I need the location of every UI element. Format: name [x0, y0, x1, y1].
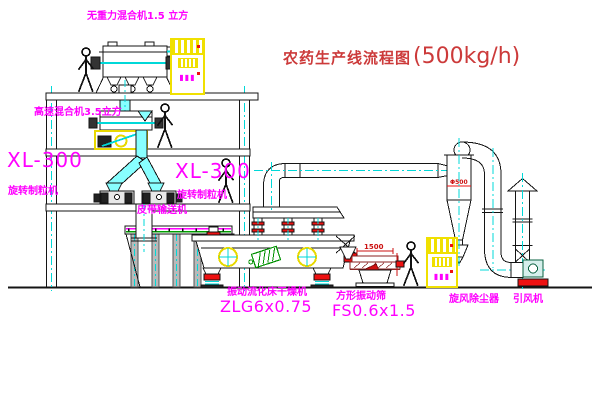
indicator-light	[197, 72, 200, 75]
cabinet-display: ▮▮▮	[428, 272, 456, 281]
label-belt-conveyor: 皮带输送机	[137, 206, 187, 216]
granulator-left	[94, 183, 134, 204]
label-sieve-model: FS0.6x1.5	[332, 303, 416, 319]
exhaust-duct	[253, 162, 450, 240]
flow-diagram-page: ▮▮▮ ▮▮▮ 农药生产线流程图 (500kg/h) 无重力混合机1.5 立方 …	[0, 0, 600, 403]
indicator-light	[450, 244, 453, 247]
title-capacity: (500kg/h)	[413, 44, 520, 69]
label-granulator-name-right: 旋转制粒机	[177, 191, 227, 201]
label-gravity-free-mixer: 无重力混合机1.5 立方	[87, 12, 188, 22]
label-granulator-model-left: XL-300	[7, 150, 83, 170]
cabinet-vent	[178, 58, 198, 68]
granulator-right	[142, 183, 182, 204]
induced-draft-fan	[511, 260, 548, 286]
control-cabinet-upper: ▮▮▮	[170, 38, 205, 95]
dimension-cyclone-dia: Φ500	[450, 179, 468, 186]
label-cyclone: 旋风除尘器	[449, 295, 499, 305]
cabinet-vent	[432, 257, 452, 267]
fluid-bed-dryer	[192, 218, 357, 288]
control-cabinet-lower: ▮▮▮	[426, 237, 458, 288]
title-text: 农药生产线流程图	[283, 47, 411, 68]
label-granulator-model-right: XL-300	[175, 161, 251, 181]
label-high-speed-mixer: 高速混合机3.5立方	[34, 108, 122, 118]
label-dryer-model: ZLG6x0.75	[220, 299, 312, 315]
diagram-title: 农药生产线流程图 (500kg/h)	[283, 44, 520, 69]
fan-suction-pipe	[462, 142, 545, 278]
indicator-light	[450, 270, 453, 273]
dimension-sieve-1500: 1500	[364, 243, 383, 251]
label-granulator-name-left: 旋转制粒机	[8, 187, 58, 197]
label-fan: 引风机	[513, 295, 543, 305]
indicator-light	[197, 45, 200, 48]
